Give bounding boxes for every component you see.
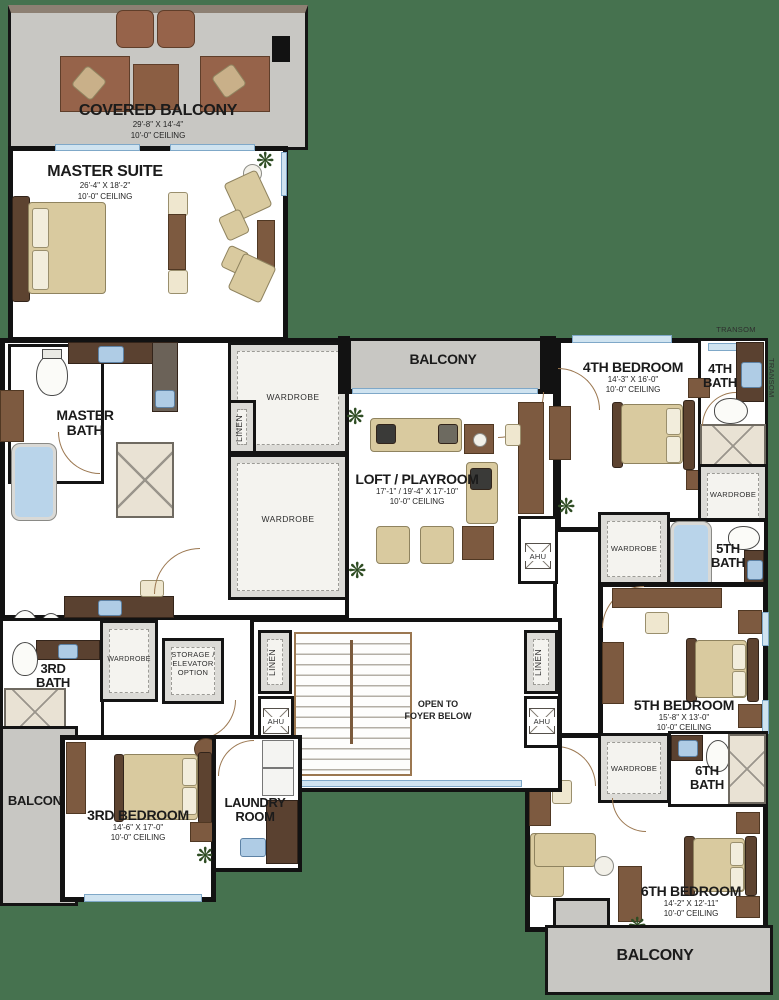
wardrobe-label: WARDROBE	[101, 656, 157, 663]
room-name-line2: BATH	[25, 676, 81, 690]
bed-headboard	[747, 638, 759, 702]
room-name: 4TH BEDROOM	[560, 360, 706, 375]
foyer-line2: FOYER BELOW	[388, 710, 488, 722]
pillow	[730, 842, 744, 866]
room-name-line1: 4TH	[694, 362, 746, 376]
room-name-line1: 6TH	[684, 764, 730, 778]
room-dims: 17'-1" / 19'-4" X 17'-10"	[352, 487, 482, 498]
pillow	[732, 644, 746, 670]
wardrobe-label: WARDROBE	[248, 392, 338, 402]
game-table	[462, 526, 494, 560]
3rd-bedroom-label: 3RD BEDROOM 14'-6" X 17'-0" 10'-0" CEILI…	[62, 808, 214, 844]
desk	[549, 406, 571, 460]
room-name: BALCONY	[348, 352, 538, 367]
plant-icon: ❋	[346, 406, 364, 428]
armchair	[420, 526, 454, 564]
room-ceiling: 10'-0" CEILING	[30, 192, 180, 203]
room-dims: 15'-8" X 13'-0"	[600, 713, 768, 724]
room-ceiling: 10'-0" CEILING	[62, 833, 214, 844]
ahu-label: AHU	[525, 552, 551, 561]
room-name: 6TH BEDROOM	[606, 884, 776, 899]
room-dims: 14'-6" X 17'-0"	[62, 823, 214, 834]
transom-label: TRANSOM	[766, 352, 776, 404]
wardrobe-label: WARDROBE	[601, 764, 667, 773]
nightstand	[738, 610, 762, 634]
window	[281, 152, 287, 196]
plant-icon: ❋	[256, 150, 274, 172]
room-name-line2: BATH	[35, 423, 135, 438]
storage-line1: STORAGE /	[164, 650, 222, 659]
room-name-line1: 3RD	[25, 662, 81, 676]
loft-label: LOFT / PLAYROOM 17'-1" / 19'-4" X 17'-10…	[352, 472, 482, 508]
balcony-armchair	[157, 10, 195, 48]
storage-line2: ELEVATOR	[164, 659, 222, 668]
table-decor	[473, 433, 487, 447]
master-suite-label: MASTER SUITE 26'-4" X 18'-2" 10'-0" CEIL…	[30, 164, 180, 202]
window	[55, 144, 140, 151]
glass-railing	[296, 780, 522, 787]
bench-seat	[168, 270, 188, 294]
window	[84, 894, 202, 902]
bath-cabinet	[0, 390, 24, 442]
balcony-mid-label: BALCONY	[348, 352, 538, 367]
room-dims: 26'-4" X 18'-2"	[30, 181, 180, 192]
sectional-sofa	[534, 833, 596, 867]
plant-icon: ❋	[557, 496, 575, 518]
6th-bath-label: 6TH BATH	[684, 764, 730, 791]
linen-label: LINEN	[234, 408, 248, 448]
balcony-column	[272, 36, 290, 62]
sink	[98, 600, 122, 616]
room-dims: 14'-3" X 16'-0"	[560, 375, 706, 386]
room-name-line1: LAUNDRY	[212, 796, 298, 810]
room-name: COVERED BALCONY	[60, 103, 256, 120]
toilet-tank	[42, 349, 62, 359]
toilet-icon	[36, 354, 68, 396]
room-dims: 14'-2" X 12'-11"	[606, 899, 776, 910]
pillow	[666, 408, 681, 435]
bed-headboard	[683, 400, 695, 470]
4th-bath-label: 4TH BATH	[694, 362, 746, 389]
desk-chair	[645, 612, 669, 634]
floor-plan: COVERED BALCONY 29'-8" X 14'-4" 10'-0" C…	[0, 0, 779, 1000]
4th-bedroom-label: 4TH BEDROOM 14'-3" X 16'-0" 10'-0" CEILI…	[560, 360, 706, 396]
sink	[98, 346, 124, 363]
master-bath-label: MASTER BATH	[35, 408, 135, 437]
bench-console	[168, 214, 186, 270]
6th-bedroom-label: 6TH BEDROOM 14'-2" X 12'-11" 10'-0" CEIL…	[606, 884, 776, 920]
pillow	[32, 250, 49, 290]
room-name: LOFT / PLAYROOM	[352, 472, 482, 487]
shower-icon	[116, 442, 174, 518]
room-name-line2: BATH	[694, 376, 746, 390]
room-name: 3RD BEDROOM	[62, 808, 214, 823]
pillar	[540, 336, 556, 394]
room-ceiling: 10'-0" CEILING	[560, 385, 706, 396]
room-ceiling: 10'-0" CEILING	[352, 497, 482, 508]
ahu-label: AHU	[529, 717, 555, 726]
wardrobe-label: WARDROBE	[243, 514, 333, 524]
room-name-line1: MASTER	[35, 408, 135, 423]
desk	[602, 642, 624, 704]
sofa-pillow	[376, 424, 396, 444]
closet-master-wardrobe-2	[228, 454, 348, 600]
foyer-line1: OPEN TO	[388, 698, 488, 710]
5th-bath-label: 5TH BATH	[702, 542, 754, 569]
dryer	[262, 768, 294, 796]
balcony-bottom-label: BALCONY	[560, 948, 750, 965]
room-name: MASTER SUITE	[30, 164, 180, 181]
shower-icon	[728, 734, 766, 804]
dresser	[66, 742, 86, 814]
washer	[262, 740, 294, 768]
sink	[58, 644, 78, 659]
ahu-label: AHU	[263, 717, 289, 726]
room-name-line1: 5TH	[702, 542, 754, 556]
pillow	[32, 208, 49, 248]
storage-line3: OPTION	[164, 668, 222, 677]
5th-bedroom-label: 5TH BEDROOM 15'-8" X 13'-0" 10'-0" CEILI…	[600, 698, 768, 734]
room-name: 5TH BEDROOM	[600, 698, 768, 713]
desk-chair	[505, 424, 521, 446]
pillow	[732, 671, 746, 697]
media-cabinet	[518, 402, 544, 514]
balcony-armchair	[116, 10, 154, 48]
sink	[678, 740, 698, 757]
sink	[155, 390, 175, 408]
room-ceiling: 10'-0" CEILING	[60, 131, 256, 142]
wardrobe-label: WARDROBE	[601, 544, 667, 553]
storage-label: STORAGE / ELEVATOR OPTION	[164, 650, 222, 677]
room-name-line2: BATH	[702, 556, 754, 570]
window	[170, 144, 255, 151]
shower-icon	[700, 424, 766, 468]
room-ceiling: 10'-0" CEILING	[606, 909, 776, 920]
window	[572, 335, 672, 343]
linen-label: LINEN	[267, 638, 281, 686]
plant-icon: ❋	[348, 560, 366, 582]
side-table	[594, 856, 614, 876]
foyer-label: OPEN TO FOYER BELOW	[388, 698, 488, 722]
desk	[612, 588, 722, 608]
pillow	[666, 436, 681, 463]
room-name: BALCONY	[560, 948, 750, 965]
nightstand	[736, 812, 760, 834]
window	[762, 612, 769, 646]
wardrobe-label: WARDROBE	[700, 490, 766, 499]
armchair	[376, 526, 410, 564]
laundry-sink	[240, 838, 266, 857]
laundry-label: LAUNDRY ROOM	[212, 796, 298, 823]
hall-right-fill	[556, 528, 602, 738]
stair-divider	[350, 640, 353, 744]
bathtub-icon	[12, 444, 56, 520]
room-name-line2: BATH	[684, 778, 730, 792]
pillow	[182, 758, 197, 786]
covered-balcony-label: COVERED BALCONY 29'-8" X 14'-4" 10'-0" C…	[60, 103, 256, 141]
room-name-line2: ROOM	[212, 810, 298, 824]
linen-label: LINEN	[533, 638, 547, 686]
room-dims: 29'-8" X 14'-4"	[60, 120, 256, 131]
3rd-bath-label: 3RD BATH	[25, 662, 81, 689]
sofa-pillow	[438, 424, 458, 444]
transom-label: TRANSOM	[710, 325, 762, 334]
